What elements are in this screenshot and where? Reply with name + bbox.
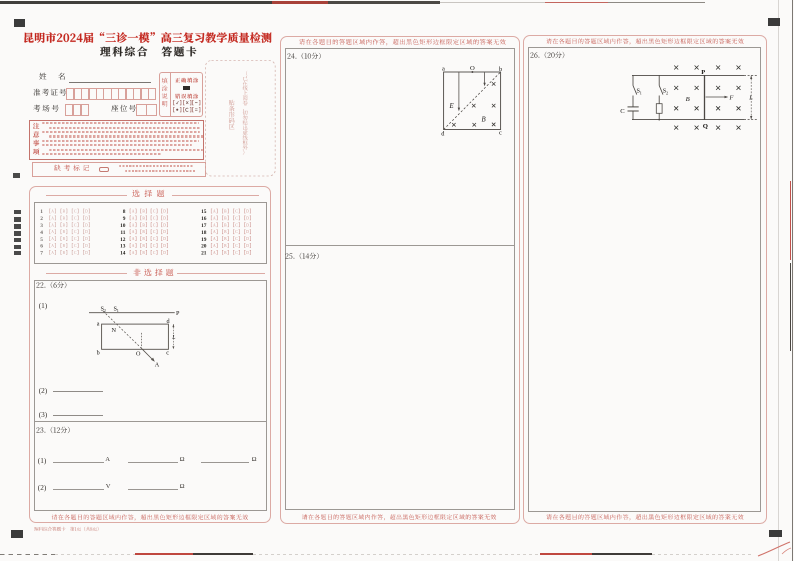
svg-text:B: B bbox=[686, 96, 690, 103]
svg-text:1: 1 bbox=[640, 90, 642, 95]
svg-text:C: C bbox=[620, 108, 625, 115]
svg-text:2: 2 bbox=[666, 90, 668, 95]
svg-text:b: b bbox=[499, 66, 502, 73]
svg-text:P: P bbox=[701, 69, 705, 76]
svg-text:d: d bbox=[441, 131, 445, 138]
svg-text:O: O bbox=[470, 65, 475, 72]
svg-text:E: E bbox=[449, 103, 455, 110]
svg-text:Q: Q bbox=[703, 123, 708, 130]
svg-text:B: B bbox=[482, 117, 486, 124]
svg-text:a: a bbox=[442, 66, 445, 73]
svg-text:F: F bbox=[728, 95, 734, 102]
svg-text:L: L bbox=[748, 94, 753, 101]
svg-text:c: c bbox=[499, 130, 502, 137]
